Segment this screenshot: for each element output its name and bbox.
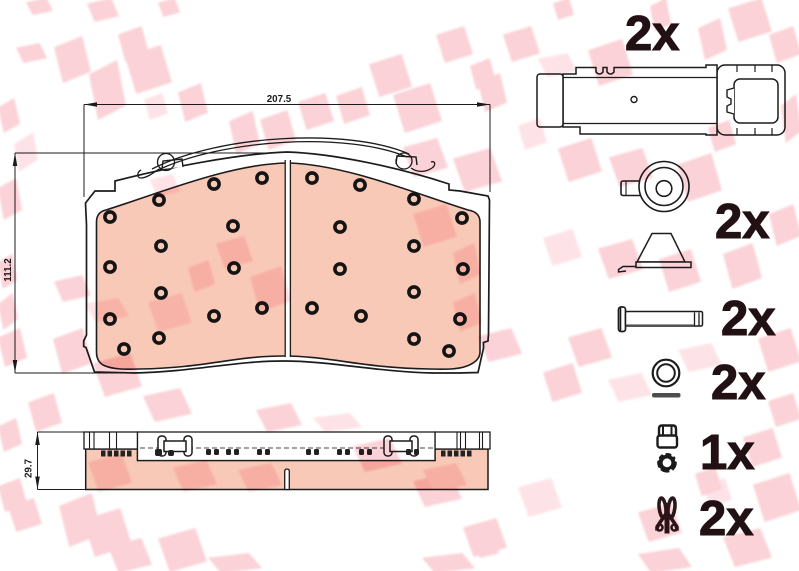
- svg-text:29.7: 29.7: [24, 458, 35, 478]
- svg-text:2x: 2x: [715, 195, 770, 249]
- svg-text:207.5: 207.5: [267, 94, 292, 105]
